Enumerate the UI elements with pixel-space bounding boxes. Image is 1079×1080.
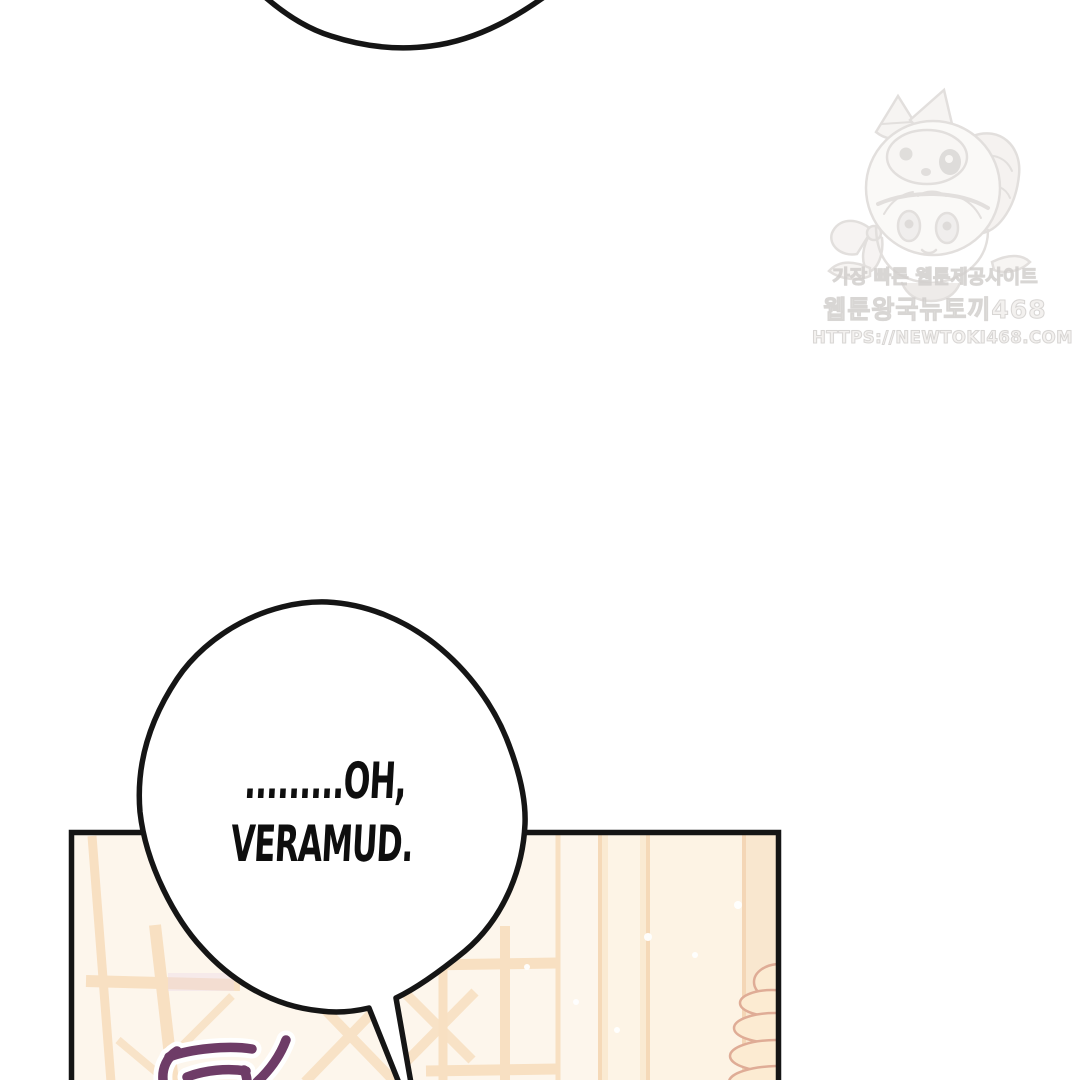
watermark-site-name: 웹툰왕국뉴토끼468	[812, 293, 1058, 326]
artwork-layer	[0, 0, 1079, 1080]
speech-bubble-text: .........OH, VERAMUD.	[213, 750, 434, 876]
speech-bubble-top-partial	[253, 0, 559, 48]
watermark-url: HTTPS://NEWTOKI468.COM	[812, 326, 1058, 349]
dialogue-line-2: VERAMUD.	[213, 813, 431, 876]
site-watermark: 가장 빠른 웹툰제공사이트 웹툰왕국뉴토끼468 HTTPS://NEWTOKI…	[812, 262, 1058, 349]
webtoon-page: .........OH, VERAMUD. 가장 빠른 웹툰제공사이트 웹툰왕국…	[0, 0, 1079, 1080]
dialogue-line-1: .........OH,	[216, 750, 434, 813]
watermark-tagline: 가장 빠른 웹툰제공사이트	[812, 262, 1058, 293]
